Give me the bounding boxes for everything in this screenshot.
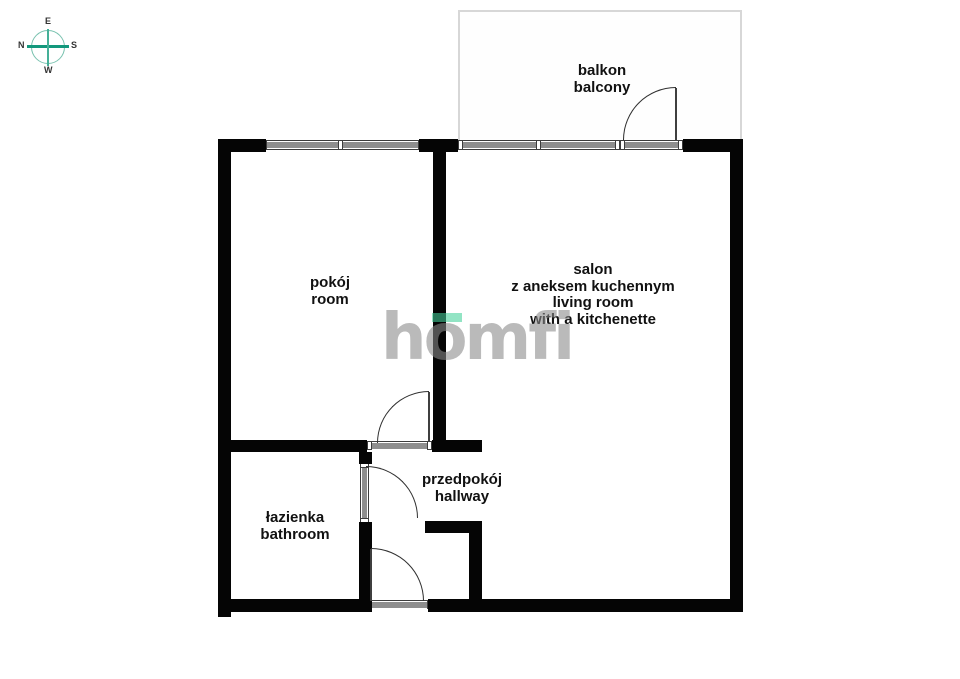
room-label-przedpokoj-en: hallway	[422, 489, 502, 506]
room-label-salon-en-1: living room	[511, 295, 674, 312]
wall-hallway-top-right	[432, 440, 482, 452]
window-room	[262, 140, 423, 150]
bathroom-door-swing-arc	[366, 466, 418, 518]
entrance-door-swing-arc	[371, 548, 424, 601]
room-label-przedpokoj-pl: przedpokój	[422, 472, 502, 489]
compass-vertical-needle-icon	[47, 29, 49, 66]
entrance-door-threshold	[367, 600, 432, 609]
wall-left	[218, 139, 231, 617]
compass-rose: E N S W	[18, 16, 80, 80]
window-mullion	[338, 140, 343, 150]
compass-south-label: S	[71, 40, 77, 50]
window-mullion	[458, 140, 463, 150]
window-livingroom	[458, 140, 620, 150]
balcony-label-en: balcony	[574, 80, 631, 97]
room-label-pokoj-en: room	[310, 292, 350, 309]
compass-west-label: W	[44, 65, 53, 75]
balcony-door-threshold	[620, 140, 683, 150]
compass-north-label: N	[18, 40, 25, 50]
room-label-przedpokoj: przedpokój hallway	[422, 472, 502, 505]
wall-right	[730, 139, 743, 612]
wall-bathroom-top	[218, 440, 367, 452]
compass-east-label: E	[45, 16, 51, 26]
door-jamb	[367, 441, 372, 450]
room-label-salon: salon z aneksem kuchennym living room wi…	[511, 262, 674, 328]
room-label-salon-pl-1: salon	[511, 262, 674, 279]
wall-bottom-left	[218, 599, 371, 612]
room-label-pokoj-pl: pokój	[310, 275, 350, 292]
balcony-label-pl: balkon	[574, 63, 631, 80]
floorplan-canvas: E N S W balkon balcony	[0, 0, 960, 679]
room-label-lazienka-en: bathroom	[260, 527, 329, 544]
window-mullion	[536, 140, 541, 150]
balcony-label: balkon balcony	[574, 63, 631, 96]
room-label-lazienka: łazienka bathroom	[260, 510, 329, 543]
room-label-pokoj: pokój room	[310, 275, 350, 308]
room-door-swing-arc	[377, 391, 429, 443]
room-label-salon-pl-2: z aneksem kuchennym	[511, 279, 674, 296]
door-jamb	[620, 140, 625, 150]
wall-bathroom-right-stub	[359, 452, 372, 464]
wall-top-segment-a	[218, 139, 266, 152]
room-label-lazienka-pl: łazienka	[260, 510, 329, 527]
room-label-salon-en-2: with a kitchenette	[511, 312, 674, 329]
wall-nook-vertical	[469, 521, 482, 612]
wall-divider-room-livingroom	[433, 139, 446, 452]
